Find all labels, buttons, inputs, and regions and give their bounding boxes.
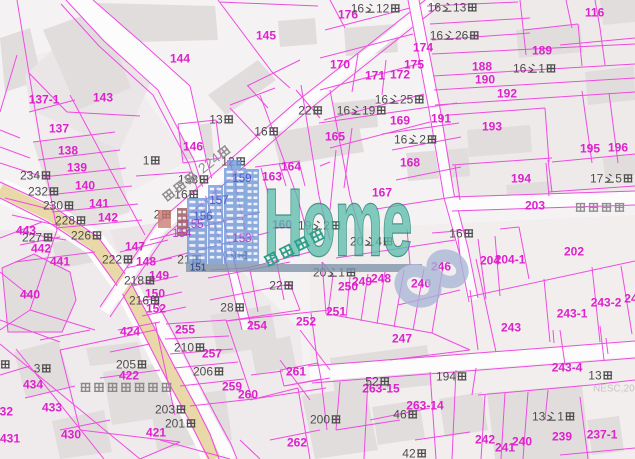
svg-text:151: 151 xyxy=(190,263,207,274)
svg-text:143: 143 xyxy=(93,90,113,104)
svg-text:254: 254 xyxy=(247,318,267,332)
svg-text:230: 230 xyxy=(43,198,63,212)
svg-text:206: 206 xyxy=(193,364,213,378)
svg-text:200: 200 xyxy=(310,412,330,426)
svg-text:137: 137 xyxy=(49,121,69,135)
svg-text:228: 228 xyxy=(55,213,75,227)
svg-text:17: 17 xyxy=(590,171,604,185)
svg-text:196: 196 xyxy=(608,140,628,154)
svg-text:141: 141 xyxy=(89,196,109,210)
svg-text:194: 194 xyxy=(436,369,456,383)
svg-text:42: 42 xyxy=(402,446,416,459)
svg-text:243-4: 243-4 xyxy=(552,360,583,374)
svg-text:262: 262 xyxy=(287,435,307,449)
svg-text:210: 210 xyxy=(174,340,194,354)
svg-text:190: 190 xyxy=(475,72,495,86)
svg-text:16: 16 xyxy=(428,0,442,14)
svg-text:188: 188 xyxy=(472,59,492,73)
svg-text:205: 205 xyxy=(116,357,136,371)
svg-text:242: 242 xyxy=(475,432,495,446)
svg-text:239: 239 xyxy=(552,429,572,443)
svg-text:424: 424 xyxy=(120,324,140,338)
svg-text:NESC,20: NESC,20 xyxy=(593,384,635,395)
svg-text:234: 234 xyxy=(20,168,40,182)
svg-text:24: 24 xyxy=(624,291,635,305)
svg-text:172: 172 xyxy=(390,67,410,81)
svg-text:260: 260 xyxy=(238,387,258,401)
svg-text:243-1: 243-1 xyxy=(557,306,588,320)
svg-text:13: 13 xyxy=(453,0,467,14)
svg-text:255: 255 xyxy=(175,322,195,336)
svg-text:191: 191 xyxy=(431,111,451,125)
svg-text:154: 154 xyxy=(172,228,192,240)
svg-text:261: 261 xyxy=(286,364,306,378)
svg-text:237-1: 237-1 xyxy=(587,427,618,441)
svg-text:3: 3 xyxy=(34,361,41,375)
svg-text:Home: Home xyxy=(264,170,412,276)
svg-text:16: 16 xyxy=(375,92,389,106)
svg-text:2: 2 xyxy=(419,132,426,146)
svg-text:145: 145 xyxy=(256,28,276,42)
svg-text:250: 250 xyxy=(338,279,358,293)
svg-text:46: 46 xyxy=(393,407,407,421)
svg-text:174: 174 xyxy=(413,40,433,54)
svg-text:1: 1 xyxy=(557,409,564,423)
svg-text:157: 157 xyxy=(209,195,228,207)
svg-text:13: 13 xyxy=(588,368,602,382)
svg-text:440: 440 xyxy=(20,287,40,301)
svg-text:203: 203 xyxy=(525,198,545,212)
svg-text:194: 194 xyxy=(511,171,531,185)
svg-text:52: 52 xyxy=(365,374,379,388)
svg-text:195: 195 xyxy=(580,141,600,155)
svg-text:16: 16 xyxy=(351,1,365,15)
svg-text:22: 22 xyxy=(269,278,283,292)
svg-text:193: 193 xyxy=(482,119,502,133)
svg-text:441: 441 xyxy=(50,254,70,268)
svg-text:169: 169 xyxy=(390,113,410,127)
svg-text:430: 430 xyxy=(61,427,81,441)
svg-text:146: 146 xyxy=(183,139,203,153)
svg-text:434: 434 xyxy=(23,377,43,391)
svg-text:170: 170 xyxy=(330,57,350,71)
svg-text:1: 1 xyxy=(143,153,150,167)
svg-text:144: 144 xyxy=(170,51,190,65)
svg-text:192: 192 xyxy=(497,86,517,100)
svg-text:22: 22 xyxy=(298,103,312,117)
svg-text:202: 202 xyxy=(564,244,584,258)
svg-text:147: 147 xyxy=(125,239,145,253)
svg-text:142: 142 xyxy=(98,210,118,224)
svg-text:165: 165 xyxy=(325,129,345,143)
svg-text:433: 433 xyxy=(42,400,62,414)
svg-text:16: 16 xyxy=(337,103,351,117)
svg-text:137-1: 137-1 xyxy=(29,92,60,106)
svg-text:26: 26 xyxy=(455,28,469,42)
svg-text:204: 204 xyxy=(480,253,500,267)
svg-text:432: 432 xyxy=(0,404,13,418)
svg-text:16: 16 xyxy=(513,61,527,75)
svg-text:257: 257 xyxy=(202,346,222,360)
svg-text:252: 252 xyxy=(296,314,316,328)
svg-text:203: 203 xyxy=(155,402,175,416)
svg-text:12: 12 xyxy=(376,1,390,15)
svg-text:148: 148 xyxy=(136,254,156,268)
svg-text:189: 189 xyxy=(532,43,552,57)
svg-text:19: 19 xyxy=(362,103,376,117)
svg-text:25: 25 xyxy=(400,92,414,106)
svg-text:431: 431 xyxy=(0,431,20,445)
svg-text:140: 140 xyxy=(75,178,95,192)
svg-text:216: 216 xyxy=(129,293,149,307)
svg-text:251: 251 xyxy=(326,304,346,318)
svg-text:1: 1 xyxy=(538,61,545,75)
svg-text:218: 218 xyxy=(124,273,144,287)
svg-text:243: 243 xyxy=(501,320,521,334)
svg-text:153: 153 xyxy=(232,233,251,245)
svg-text:232: 232 xyxy=(28,184,48,198)
svg-text:171: 171 xyxy=(365,68,385,82)
svg-text:16: 16 xyxy=(449,226,463,240)
svg-text:240: 240 xyxy=(512,434,532,448)
svg-text:263-14: 263-14 xyxy=(406,398,444,412)
svg-text:13: 13 xyxy=(532,409,546,423)
svg-text:16: 16 xyxy=(394,132,408,146)
svg-text:168: 168 xyxy=(400,155,420,169)
svg-text:28: 28 xyxy=(220,300,234,314)
svg-text:222: 222 xyxy=(102,252,122,266)
svg-text:139: 139 xyxy=(67,160,87,174)
svg-text:227: 227 xyxy=(22,230,42,244)
svg-text:116: 116 xyxy=(585,5,605,19)
svg-text:16: 16 xyxy=(430,28,444,42)
svg-text:247: 247 xyxy=(392,331,412,345)
svg-text:201: 201 xyxy=(165,416,185,430)
svg-text:243-2: 243-2 xyxy=(591,295,622,309)
svg-text:13: 13 xyxy=(209,112,223,126)
svg-text:421: 421 xyxy=(146,425,166,439)
svg-text:159: 159 xyxy=(232,173,251,185)
svg-text:138: 138 xyxy=(58,143,78,157)
svg-text:226: 226 xyxy=(71,228,91,242)
svg-text:16: 16 xyxy=(254,124,268,138)
svg-text:5: 5 xyxy=(615,171,622,185)
